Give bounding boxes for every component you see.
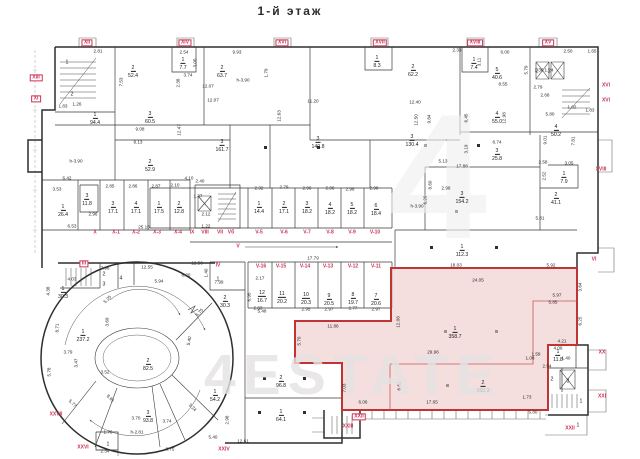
dimension-label: 1.26 xyxy=(73,103,82,108)
section-label: XXIV xyxy=(218,447,229,452)
section-label: V-5 xyxy=(255,230,263,235)
room-label: 3161.7 xyxy=(216,131,229,153)
dimension-label: 2.98 xyxy=(226,416,231,425)
section-label: V-13 xyxy=(323,264,333,269)
dimension-label: 18.03 xyxy=(450,264,462,269)
dimension-label: 2.52 xyxy=(543,172,548,181)
dimension-label: 12.98 xyxy=(503,112,508,124)
dimension-label: 4.06 xyxy=(554,347,563,352)
dimension-label: 6.61 xyxy=(398,382,403,391)
dimension-label: 6.45 xyxy=(465,114,470,123)
room-label: 393.8 xyxy=(143,402,153,424)
dimension-label: 6.20 xyxy=(182,274,191,279)
section-label: XXII xyxy=(352,413,366,420)
dimension-label: 2.96 xyxy=(89,213,98,218)
dimension-label: 5.80 xyxy=(546,113,555,118)
dimension-label: 2.96 xyxy=(346,188,355,193)
section-label: XVII xyxy=(373,39,387,46)
dimension-label: 3.11 xyxy=(478,58,483,67)
dimension-label: 6.00 xyxy=(501,51,510,56)
dimension-label: 3.74 xyxy=(163,420,172,425)
room-label: 252.9 xyxy=(145,151,155,173)
dimension-label: 2.85 xyxy=(106,185,115,190)
room-label: 126.4 xyxy=(58,196,68,218)
section-label: X-2 xyxy=(132,230,140,235)
dimension-label: 1.83 xyxy=(59,105,68,110)
room-label: 4 xyxy=(119,268,124,285)
dimension-label: 17.65 xyxy=(426,401,438,406)
dimension-label: 17.88 xyxy=(456,165,468,170)
room-label: 3 xyxy=(102,274,107,291)
section-label: V-12 xyxy=(348,264,358,269)
dimension-label: 5.94 xyxy=(155,280,164,285)
dimension-label: 3.52 xyxy=(101,371,110,376)
page-title: 1-й этаж xyxy=(0,4,580,18)
section-label: X-3 xyxy=(153,230,161,235)
dimension-label: 5.78 xyxy=(48,368,53,377)
dimension-label: 5.77 xyxy=(67,399,77,409)
dimension-label: 4.03 xyxy=(68,278,77,283)
section-label: IV xyxy=(216,263,221,268)
dimension-label: 2.40 xyxy=(196,180,205,185)
room-label: 720.6 xyxy=(371,285,381,307)
dimension-label: h-3.90 xyxy=(69,160,82,165)
room-label: 2 xyxy=(70,84,75,101)
section-label: V-15 xyxy=(276,264,286,269)
section-label: III xyxy=(79,260,88,267)
room-label: 455.0 xyxy=(492,103,502,125)
dimension-label: 5.80 xyxy=(529,411,538,416)
dimension-label: 3.24 xyxy=(187,403,197,413)
room-label: 2 xyxy=(550,369,555,386)
room-label: 618.4 xyxy=(371,195,381,217)
room-label: 360.5 xyxy=(145,103,155,125)
room-label: 1358.7 xyxy=(449,318,462,340)
room-label: 1237.2 xyxy=(77,321,90,343)
dimension-label: 3.79 xyxy=(64,351,73,356)
dimension-label: 2.12 xyxy=(202,213,211,218)
section-label: XXI xyxy=(598,394,606,399)
dimension-label: 12.40 xyxy=(409,101,421,106)
dimension-label: 8.71 xyxy=(56,324,61,333)
dimension-label: 7.53 xyxy=(120,78,125,87)
dimension-label: 4.38 xyxy=(47,287,52,296)
dimension-label: 7.98 xyxy=(101,267,110,272)
dimension-label: 17.79 xyxy=(307,257,319,262)
section-label: XII xyxy=(81,39,92,46)
room-label: 230.3 xyxy=(220,287,230,309)
section-label: XXVI xyxy=(77,445,88,450)
section-label: XVIII xyxy=(596,167,607,172)
room-label: 417.1 xyxy=(131,193,141,215)
dimension-label: 2.54 xyxy=(180,51,189,56)
room-label: 418.2 xyxy=(325,194,335,216)
section-label: XIII xyxy=(30,74,43,81)
dimension-label: 2.95 xyxy=(302,308,311,313)
dimension-label: 2.87 xyxy=(152,185,161,190)
section-label: VI xyxy=(592,257,597,262)
dimension-label: 2.81 xyxy=(94,50,103,55)
section-label: XV xyxy=(542,39,554,46)
dimension-label: 2.98 xyxy=(370,187,379,192)
dimension-label: 1.37 xyxy=(194,195,203,200)
dimension-label: 3.05 xyxy=(565,162,574,167)
dimension-label: 7.99 xyxy=(215,281,224,286)
dimension-label: 3.64 xyxy=(579,283,584,292)
section-label: V-9 xyxy=(348,230,356,235)
section-label: VII xyxy=(217,230,223,235)
dimension-label: 2.77 xyxy=(349,307,358,312)
section-label: XIV xyxy=(178,39,191,46)
section-label: VIII xyxy=(201,230,209,235)
dimension-label: 2.10 xyxy=(171,184,180,189)
dimension-label: 2.34 xyxy=(101,450,110,455)
dimension-label: 12.63 xyxy=(278,110,283,122)
dimension-label: 12.08 xyxy=(397,316,402,328)
dimension-label: 11.20 xyxy=(307,100,318,105)
dimension-label: 2.79 xyxy=(280,186,289,191)
section-label: XVI xyxy=(602,83,610,88)
section-label: X-1 xyxy=(112,230,120,235)
dimension-label: 1.83 xyxy=(586,109,595,114)
dimension-label: 4.21 xyxy=(558,340,567,345)
dimension-label: 5.75 xyxy=(195,308,205,318)
dimension-label: 6.95 xyxy=(248,293,253,302)
dimension-label: 5.40 xyxy=(187,336,193,346)
dimension-label: 2.86 xyxy=(129,185,138,190)
section-label: V-6 xyxy=(280,230,288,235)
section-label: V-11 xyxy=(371,264,381,269)
dimension-label: 1.65 xyxy=(588,50,597,55)
dimension-label: 12.55 xyxy=(141,266,153,271)
dimension-label: 4.10 xyxy=(185,177,194,182)
room-label: 262.2 xyxy=(408,56,418,78)
dimension-label: 2.17 xyxy=(256,277,265,282)
dimension-label: 29.96 xyxy=(427,351,439,356)
dimension-label: 7.03 xyxy=(343,384,348,393)
section-label: V-7 xyxy=(303,230,311,235)
room-label: 154.2 xyxy=(210,381,220,403)
dimension-label: 9.01 xyxy=(544,136,549,145)
dimension-label: 9.08 xyxy=(136,128,145,133)
room-label: 164.1 xyxy=(276,401,286,423)
dimension-label: 9.93 xyxy=(233,51,242,56)
dimension-label: 6.42 xyxy=(63,177,72,182)
dimension-label: 5.70 xyxy=(298,337,303,346)
room-label: 282.5 xyxy=(143,350,153,372)
room-label: 311.8 xyxy=(82,185,92,207)
dimension-label: 5.81 xyxy=(536,217,545,222)
dimension-label: 8.60 xyxy=(429,181,434,190)
room-label: 318.2 xyxy=(302,193,312,215)
dimension-label: 5.97 xyxy=(553,294,562,299)
labels-layer: 12252.417.7263.718.3262.217.4540.621194.… xyxy=(0,0,640,459)
dimension-label: 6.06 xyxy=(359,401,368,406)
room-label: 1112.3 xyxy=(456,236,469,258)
room-label: 114.4 xyxy=(254,193,264,215)
dimension-label: 1.24 xyxy=(545,69,554,74)
dimension-label: 5.92 xyxy=(547,264,556,269)
room-label: 3 xyxy=(566,371,571,388)
dimension-label: 12.07 xyxy=(202,85,214,90)
room-label: 296.8 xyxy=(276,367,286,389)
dimension-label: 2.54 xyxy=(543,365,552,370)
dimension-label: 1.02 xyxy=(568,106,577,111)
dimension-label: 5.85 xyxy=(549,301,558,306)
dimension-label: 6.25 xyxy=(579,317,584,326)
section-label: V-8 xyxy=(326,230,334,235)
dimension-label: 2.79 xyxy=(534,86,543,91)
dimension-label: 3.69 xyxy=(106,318,111,327)
dimension-label: h-3.90 xyxy=(410,205,423,210)
room-label: 819.7 xyxy=(348,284,358,306)
dimension-label: 1.08 xyxy=(526,357,535,362)
dimension-label: 6.75 xyxy=(166,448,175,453)
dimension-label: 12.50 xyxy=(415,114,420,126)
room-label: 3130.4 xyxy=(406,126,419,148)
dimension-label: 5.48 xyxy=(258,310,267,315)
dimension-label: 12.61 xyxy=(237,440,249,445)
section-label: V xyxy=(236,244,239,249)
dimension-label: 2.97 xyxy=(325,308,334,313)
dimension-label: 1.40 xyxy=(205,269,210,278)
dimension-label: 12.47 xyxy=(178,124,183,136)
room-label: 1 xyxy=(65,52,70,69)
dimension-label: 9.84 xyxy=(428,115,433,124)
dimension-label: 1.76 xyxy=(104,431,113,436)
room-label: 3140.8 xyxy=(312,128,325,150)
dimension-label: 5.25 xyxy=(103,295,113,305)
dimension-label: 1.36 xyxy=(535,69,544,74)
section-label: IX xyxy=(190,230,195,235)
dimension-label: 2.98 xyxy=(442,187,451,192)
dimension-label: 1.73 xyxy=(523,396,532,401)
room-label: 1 xyxy=(579,391,584,408)
dimension-label: h-2.81 xyxy=(130,431,143,436)
room-label: 1 xyxy=(576,415,581,432)
section-label: XX xyxy=(599,350,606,355)
room-label: 241.1 xyxy=(551,184,561,206)
dimension-label: 12.07 xyxy=(207,99,219,104)
dimension-label: 2.50 xyxy=(564,50,573,55)
dimension-label: 8.61 xyxy=(105,394,115,404)
dimension-label: 5.40 xyxy=(209,436,218,441)
room-label: 263.7 xyxy=(217,57,227,79)
section-label: XXIII xyxy=(343,424,354,429)
dimension-label: 5.13 xyxy=(439,160,448,165)
section-label: XXVII xyxy=(50,412,63,417)
dimension-label: 3.70 xyxy=(132,417,141,422)
dimension-label: 8.74 xyxy=(493,141,502,146)
dimension-label: 3.74 xyxy=(184,74,193,79)
dimension-label: 8.55 xyxy=(499,83,508,88)
room-label: 450.2 xyxy=(551,116,561,138)
room-label: 117.5 xyxy=(154,193,164,215)
section-label: XVI xyxy=(275,39,288,46)
section-label: XVI xyxy=(602,98,610,103)
dimension-label: 2.96 xyxy=(326,187,335,192)
dimension-label: 3.05 xyxy=(194,59,199,68)
room-label: 2160.3 xyxy=(477,372,490,394)
room-label: 194.4 xyxy=(90,104,100,126)
dimension-label: 6.20 xyxy=(424,196,429,205)
dimension-label: 3.19 xyxy=(465,145,470,154)
floor-plan: 1-й этаж xyxy=(0,0,640,459)
room-label: 1120.2 xyxy=(277,283,287,305)
dimension-label: 3.47 xyxy=(75,359,80,368)
dimension-label: 2.32 xyxy=(255,187,264,192)
section-label: V-16 xyxy=(256,264,266,269)
section-label: V-10 xyxy=(370,230,380,235)
section-label: Vб xyxy=(228,230,234,235)
room-label: 212.8 xyxy=(174,193,184,215)
dimension-label: 7.81 xyxy=(572,137,577,146)
room-label: 518.2 xyxy=(347,194,357,216)
section-label: X-4 xyxy=(174,230,182,235)
room-label: 18.3 xyxy=(373,47,380,69)
section-label: XI xyxy=(31,95,41,102)
section-label: V-14 xyxy=(300,264,310,269)
section-label: XVIII xyxy=(467,39,483,46)
room-label: 317.1 xyxy=(108,193,118,215)
dimension-label: h-3.90 xyxy=(236,79,249,84)
section-label: X xyxy=(93,230,96,235)
dimension-label: 5.79 xyxy=(525,66,530,75)
dimension-label: 2.33 xyxy=(453,49,462,54)
room-label: 540.6 xyxy=(492,59,502,81)
dimension-label: 12.56 xyxy=(191,262,203,267)
dimension-label: 2.58 xyxy=(539,161,548,166)
dimension-label: 11.86 xyxy=(327,325,338,330)
dimension-label: 2.97 xyxy=(372,308,381,313)
dimension-label: 1.40 xyxy=(562,357,571,362)
dimension-label: 6.53 xyxy=(68,225,77,230)
room-label: 217.1 xyxy=(279,193,289,215)
dimension-label: 9.13 xyxy=(134,141,143,146)
dimension-label: 2.96 xyxy=(303,187,312,192)
room-label: 3154.2 xyxy=(456,183,469,205)
room-label: 252.4 xyxy=(128,57,138,79)
section-label: XXII xyxy=(565,426,574,431)
room-label: 1020.3 xyxy=(301,284,311,306)
dimension-label: 2.68 xyxy=(541,94,550,99)
dimension-label: 1.79 xyxy=(265,69,270,78)
room-label: 920.5 xyxy=(324,285,334,307)
dimension-label: 3.53 xyxy=(53,188,62,193)
dimension-label: 24.05 xyxy=(472,279,484,284)
room-label: 1216.7 xyxy=(257,282,267,304)
dimension-label: 2.38 xyxy=(177,79,182,88)
